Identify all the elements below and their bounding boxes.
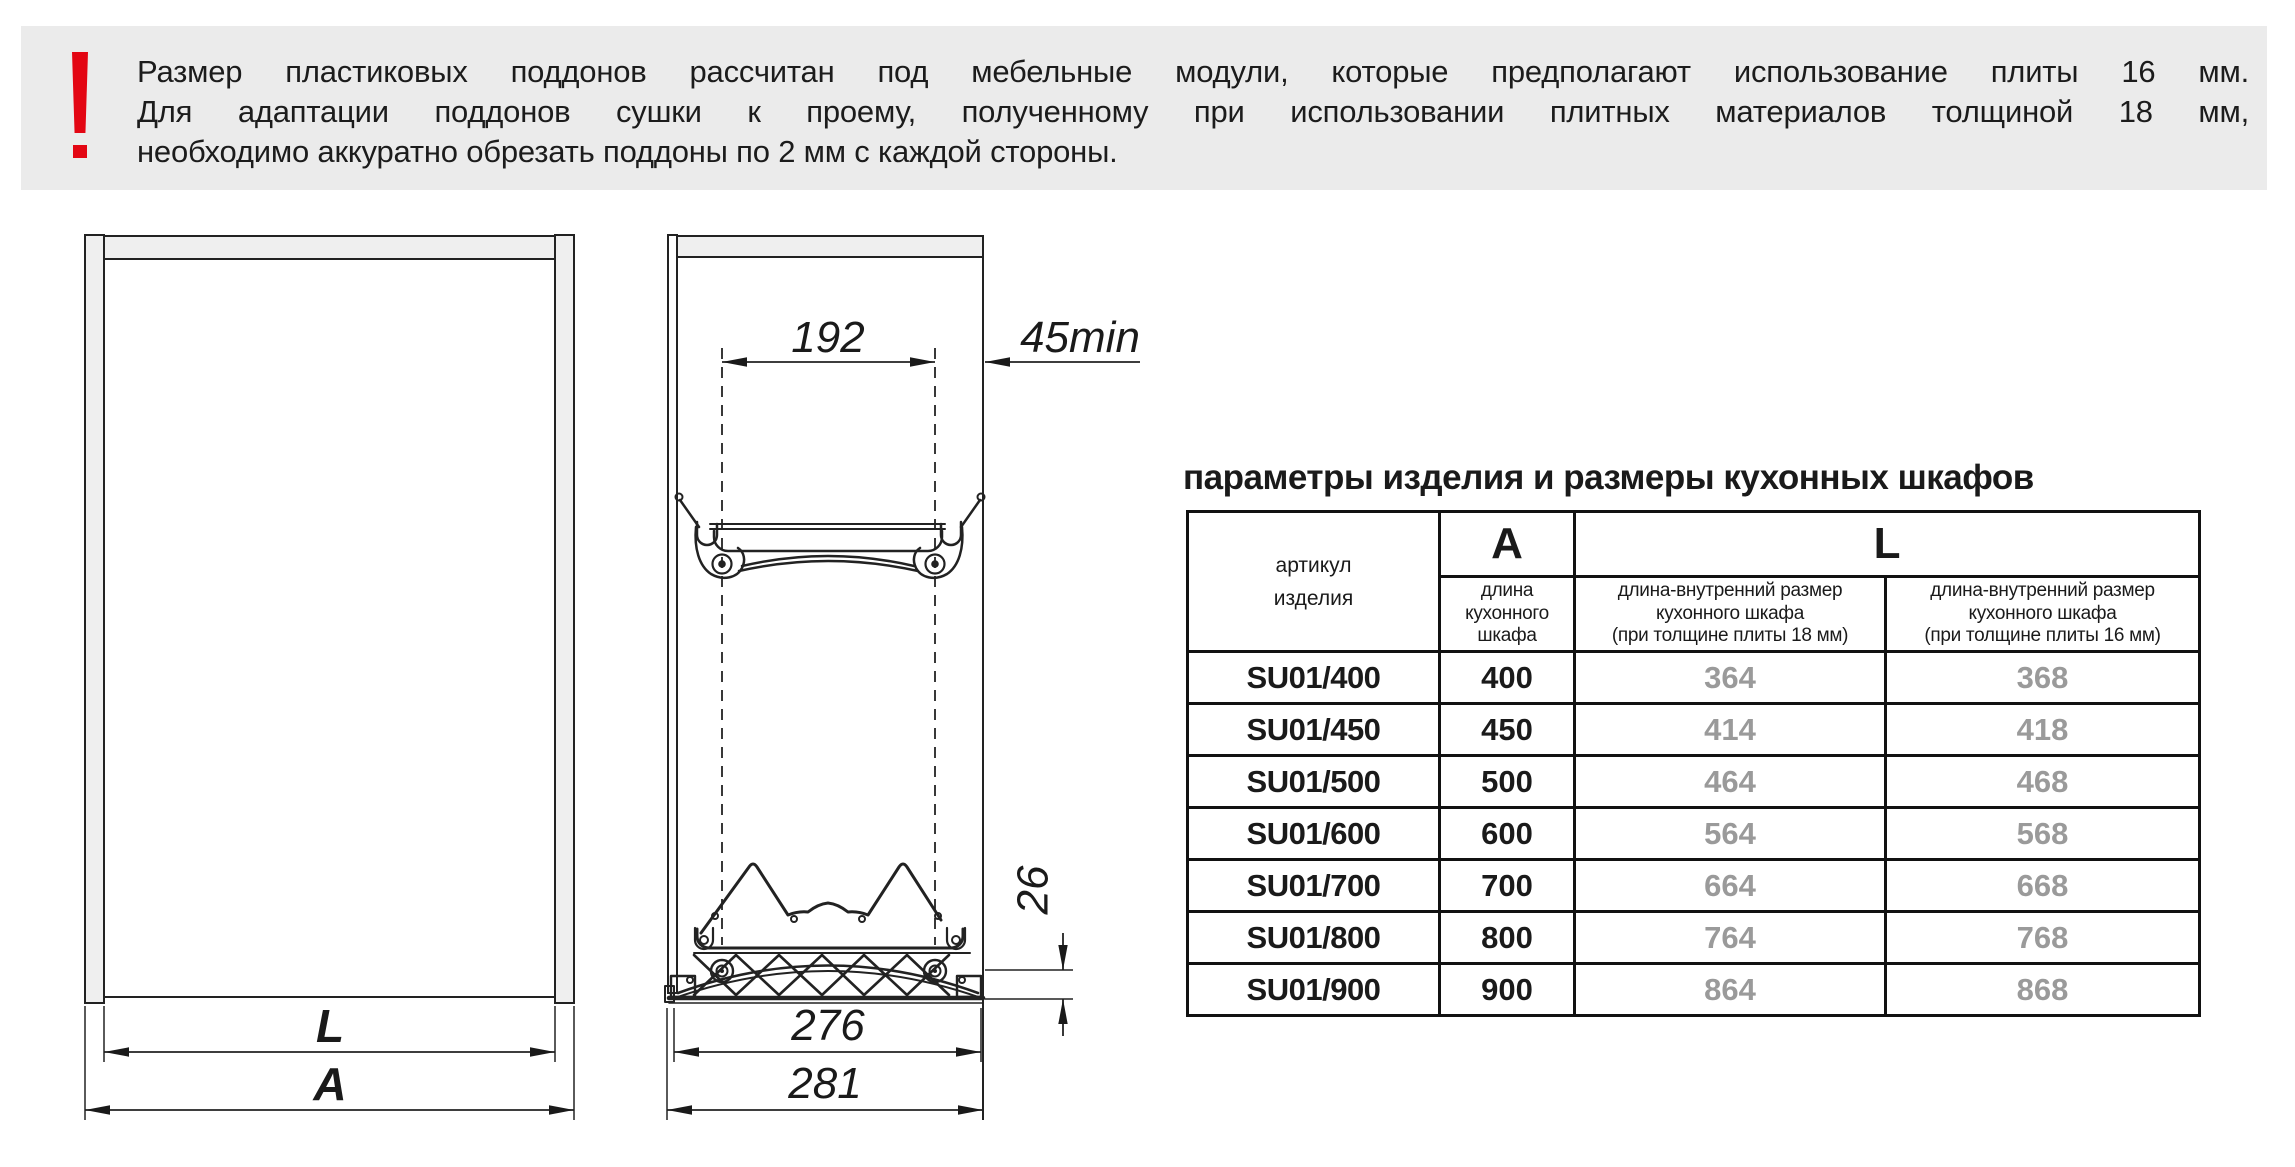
header-A-sub: длина кухонного шкафа: [1440, 577, 1575, 652]
table-header-row-1: артикул изделия A L: [1188, 512, 2200, 577]
header-L: L: [1575, 512, 2200, 577]
parameters-table: артикул изделия A L длина кухонного шкаф…: [1186, 510, 2201, 1017]
cell-l18: 414: [1575, 704, 1886, 756]
table-row: SU01/400 400 364 368: [1188, 652, 2200, 704]
cabinet-right-panel: [555, 235, 574, 1003]
cell-article: SU01/700: [1188, 860, 1440, 912]
cell-a: 800: [1440, 912, 1575, 964]
warning-banner: Размер пластиковых поддонов рассчитан по…: [21, 26, 2267, 190]
header-L18-sub: длина-внутренний размер кухонного шкафа …: [1575, 577, 1886, 652]
cell-article: SU01/900: [1188, 964, 1440, 1016]
cabinet-front-view-drawing: L A: [85, 235, 574, 1120]
cell-l18: 864: [1575, 964, 1886, 1016]
header-article: артикул изделия: [1188, 512, 1440, 652]
front-view-extension-lines: [85, 1006, 574, 1120]
cell-l16: 418: [1886, 704, 2200, 756]
table-row: SU01/800 800 764 768: [1188, 912, 2200, 964]
warning-line-2: Для адаптации поддонов сушки к проему, п…: [137, 92, 2249, 132]
table-title: параметры изделия и размеры кухонных шка…: [1183, 458, 2034, 498]
cabinet-side-view-drawing: 192 45min: [665, 235, 1140, 1120]
table-row: SU01/600 600 564 568: [1188, 808, 2200, 860]
cell-article: SU01/400: [1188, 652, 1440, 704]
lower-tray-and-base: [665, 864, 983, 1003]
dim-label-276: 276: [790, 1001, 865, 1050]
cell-l16: 468: [1886, 756, 2200, 808]
cell-article: SU01/800: [1188, 912, 1440, 964]
dim-281-group: 281: [667, 1008, 983, 1120]
cell-l18: 564: [1575, 808, 1886, 860]
upper-tray-bracket: [676, 494, 985, 578]
cell-a: 600: [1440, 808, 1575, 860]
dim-label-26: 26: [1009, 865, 1058, 915]
side-top-rail: [677, 236, 983, 257]
table-row: SU01/900 900 864 868: [1188, 964, 2200, 1016]
dim-label-45min: 45min: [1020, 313, 1140, 362]
table-row: SU01/450 450 414 418: [1188, 704, 2200, 756]
cell-l16: 668: [1886, 860, 2200, 912]
cell-l18: 364: [1575, 652, 1886, 704]
exclamation-dot: [73, 145, 87, 158]
table-row: SU01/700 700 664 668: [1188, 860, 2200, 912]
dim-label-A: A: [312, 1058, 346, 1110]
cell-l16: 868: [1886, 964, 2200, 1016]
cell-a: 500: [1440, 756, 1575, 808]
warning-text: Размер пластиковых поддонов рассчитан по…: [137, 52, 2249, 172]
cell-article: SU01/600: [1188, 808, 1440, 860]
cell-l16: 768: [1886, 912, 2200, 964]
cell-l18: 764: [1575, 912, 1886, 964]
cell-a: 450: [1440, 704, 1575, 756]
exclamation-bar: [72, 52, 88, 133]
cell-a: 400: [1440, 652, 1575, 704]
cell-l18: 664: [1575, 860, 1886, 912]
dim-label-L: L: [316, 1000, 344, 1052]
dim-276-group: 276: [674, 1001, 981, 1062]
cell-a: 900: [1440, 964, 1575, 1016]
cabinet-top-rail: [104, 236, 555, 259]
dim-26-group: 26: [985, 865, 1073, 1036]
cell-l16: 368: [1886, 652, 2200, 704]
cell-l18: 464: [1575, 756, 1886, 808]
dim-label-281: 281: [787, 1059, 861, 1108]
mounting-axis-dashed-lines: [722, 348, 935, 945]
cabinet-left-panel: [85, 235, 104, 1003]
cell-article: SU01/500: [1188, 756, 1440, 808]
table-row: SU01/500 500 464 468: [1188, 756, 2200, 808]
warning-line-3: необходимо аккуратно обрезать поддоны по…: [137, 132, 2249, 172]
header-L16-sub: длина-внутренний размер кухонного шкафа …: [1886, 577, 2200, 652]
cell-a: 700: [1440, 860, 1575, 912]
instruction-page: Размер пластиковых поддонов рассчитан по…: [0, 0, 2295, 1167]
warning-exclamation-icon: [72, 52, 88, 164]
side-back-panel: [668, 235, 677, 993]
warning-line-1: Размер пластиковых поддонов рассчитан по…: [137, 52, 2249, 92]
cell-article: SU01/450: [1188, 704, 1440, 756]
cell-l16: 568: [1886, 808, 2200, 860]
header-A: A: [1440, 512, 1575, 577]
dim-label-192: 192: [791, 313, 864, 362]
